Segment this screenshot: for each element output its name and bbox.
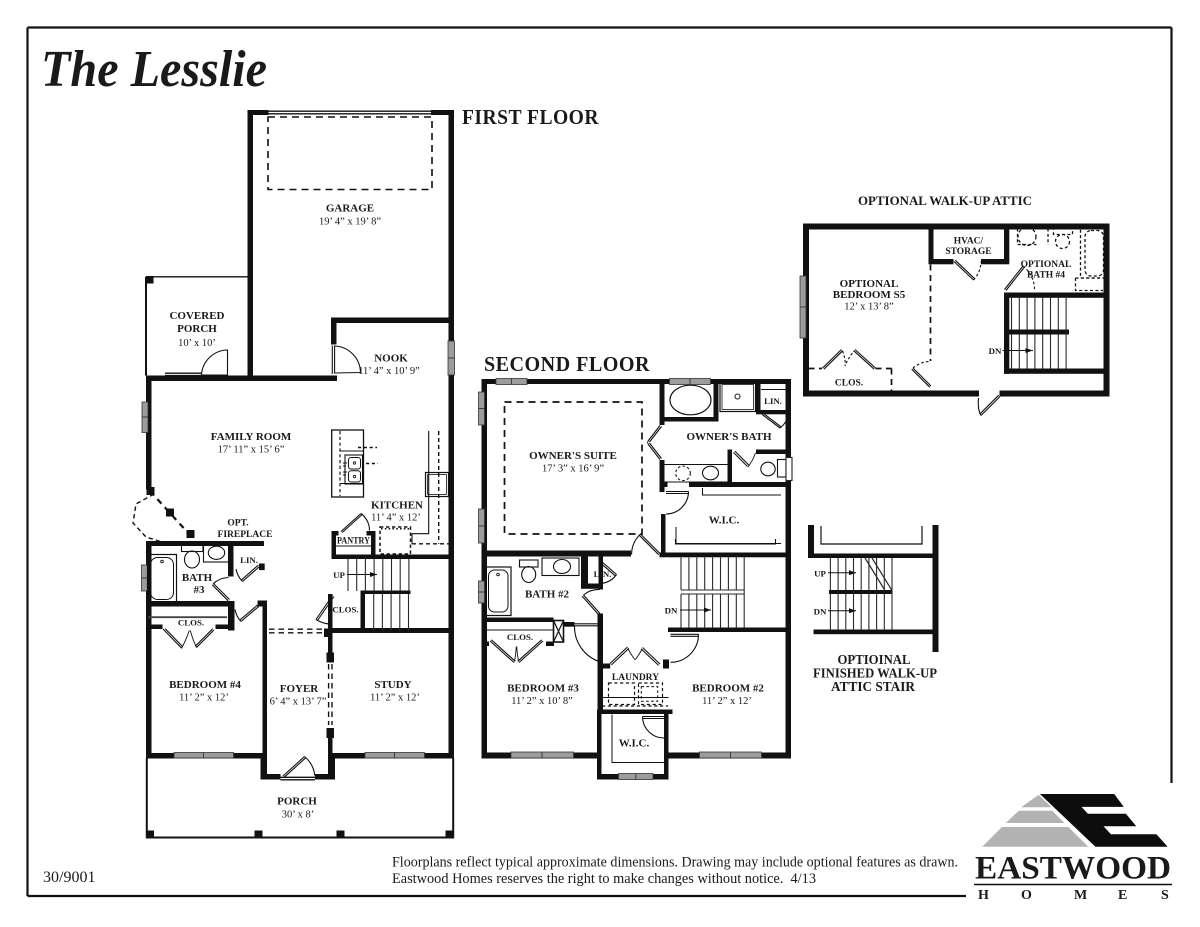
svg-text:GARAGE: GARAGE (326, 203, 374, 215)
svg-text:LIN.: LIN. (240, 555, 258, 565)
svg-text:OWNER'S BATH: OWNER'S BATH (686, 431, 772, 443)
svg-text:FAMILY ROOM: FAMILY ROOM (211, 431, 292, 443)
svg-text:CLOS.: CLOS. (507, 632, 533, 642)
svg-text:17’ 3” x 16’ 9”: 17’ 3” x 16’ 9” (542, 464, 604, 475)
svg-text:DN: DN (989, 346, 1002, 356)
svg-text:W.I.C.: W.I.C. (709, 515, 740, 527)
svg-text:30/9001: 30/9001 (43, 869, 95, 886)
svg-text:EASTWOOD: EASTWOOD (975, 851, 1171, 887)
svg-text:CLOS.: CLOS. (178, 618, 204, 628)
svg-text:S: S (1161, 888, 1169, 903)
svg-text:CLOS.: CLOS. (332, 605, 358, 615)
svg-text:STUDY: STUDY (374, 679, 411, 691)
svg-text:BEDROOM #3: BEDROOM #3 (507, 683, 579, 695)
svg-text:BEDROOM S5: BEDROOM S5 (833, 289, 906, 301)
svg-text:PANTRY: PANTRY (337, 537, 370, 547)
svg-text:CLOS.: CLOS. (835, 379, 863, 389)
svg-text:10’ x 10’: 10’ x 10’ (178, 338, 216, 349)
svg-text:FOYER: FOYER (280, 683, 320, 695)
svg-text:UP: UP (814, 569, 826, 579)
svg-text:KITCHEN: KITCHEN (371, 500, 423, 512)
svg-text:11’ 2” x 12’: 11’ 2” x 12’ (179, 693, 229, 704)
svg-text:OPTIONAL WALK-UP ATTIC: OPTIONAL WALK-UP ATTIC (858, 194, 1032, 208)
svg-text:11’ 4” x 10’ 9”: 11’ 4” x 10’ 9” (358, 366, 420, 377)
svg-text:FIRST FLOOR: FIRST FLOOR (462, 105, 599, 129)
svg-text:OPT.: OPT. (227, 519, 248, 529)
svg-text:FIREPLACE: FIREPLACE (218, 530, 273, 540)
svg-text:Eastwood Homes reserves the ri: Eastwood Homes reserves the right to mak… (392, 870, 816, 887)
svg-text:O: O (1021, 888, 1032, 903)
svg-text:6’ 4” x 13’ 7”: 6’ 4” x 13’ 7” (270, 697, 327, 708)
svg-text:BATH #4: BATH #4 (1027, 271, 1065, 281)
svg-text:SECOND FLOOR: SECOND FLOOR (484, 352, 650, 376)
svg-text:PORCH: PORCH (177, 323, 217, 335)
svg-text:30’ x 8’: 30’ x 8’ (282, 810, 314, 821)
svg-text:LIN.: LIN. (594, 569, 612, 579)
svg-text:HVAC/: HVAC/ (954, 237, 984, 247)
svg-text:OWNER'S SUITE: OWNER'S SUITE (529, 450, 617, 462)
svg-text:17’ 11” x 15’ 6”: 17’ 11” x 15’ 6” (218, 445, 285, 456)
svg-text:11’ 2” x 10’ 8”: 11’ 2” x 10’ 8” (511, 696, 573, 707)
svg-text:DN: DN (665, 606, 678, 616)
svg-text:LIN.: LIN. (764, 396, 782, 406)
svg-text:BEDROOM #2: BEDROOM #2 (692, 683, 764, 695)
svg-text:UP: UP (333, 570, 345, 580)
svg-text:11’ 2” x 12’: 11’ 2” x 12’ (702, 696, 752, 707)
svg-text:W.I.C.: W.I.C. (619, 738, 650, 750)
svg-text:NOOK: NOOK (374, 353, 408, 365)
svg-text:STORAGE: STORAGE (945, 247, 991, 257)
svg-text:ATTIC STAIR: ATTIC STAIR (831, 679, 915, 694)
svg-text:11’ 2” x 12’: 11’ 2” x 12’ (370, 693, 420, 704)
svg-text:OPTIONAL: OPTIONAL (1021, 260, 1072, 270)
svg-text:Floorplans reflect typical app: Floorplans reflect typical approximate d… (392, 854, 958, 871)
svg-text:The Lesslie: The Lesslie (41, 41, 267, 98)
svg-text:BEDROOM #4: BEDROOM #4 (169, 679, 241, 691)
svg-text:DN: DN (814, 607, 827, 617)
svg-text:COVERED: COVERED (169, 310, 224, 322)
svg-text:#3: #3 (194, 584, 206, 596)
svg-text:E: E (1118, 888, 1127, 903)
svg-text:H: H (978, 888, 989, 903)
svg-text:LAUNDRY: LAUNDRY (612, 673, 659, 683)
svg-text:BATH #2: BATH #2 (525, 589, 570, 601)
svg-text:BATH: BATH (182, 572, 213, 584)
svg-text:12’ x 13’ 8”: 12’ x 13’ 8” (844, 302, 894, 313)
svg-text:PORCH: PORCH (277, 796, 317, 808)
svg-text:11’ 4” x 12’: 11’ 4” x 12’ (371, 513, 421, 524)
svg-text:19’ 4” x 19’ 8”: 19’ 4” x 19’ 8” (319, 217, 381, 228)
svg-text:M: M (1074, 888, 1087, 903)
